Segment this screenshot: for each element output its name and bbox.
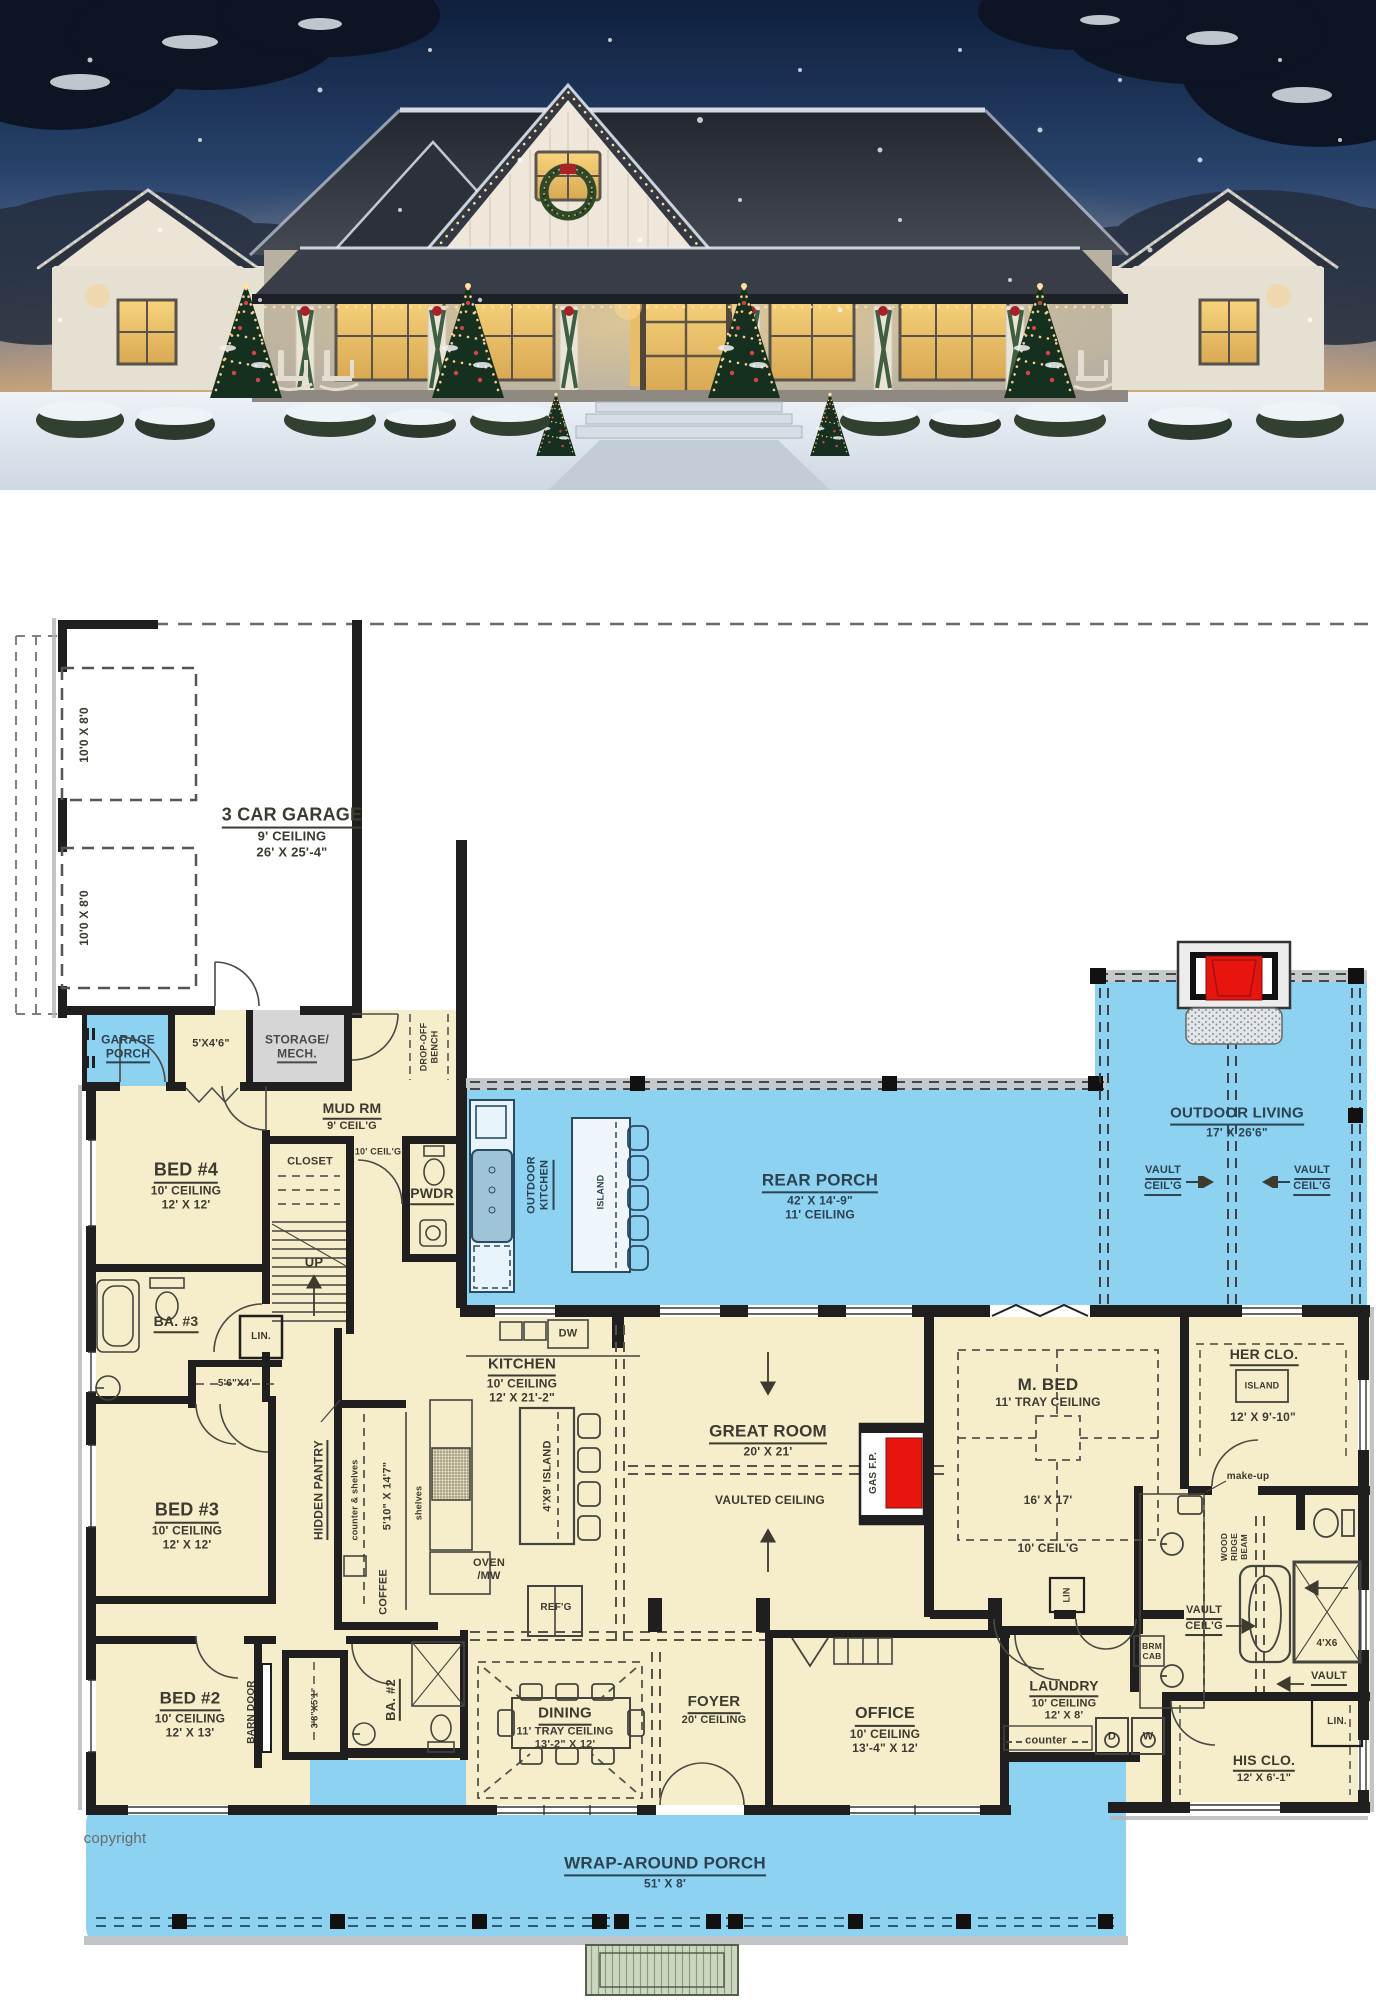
stairs-up-label: UP xyxy=(305,1254,323,1269)
rear-porch-label: REAR PORCH42' X 14'-9"11' CEILING xyxy=(762,1170,878,1221)
dishwasher-label: DW xyxy=(559,1328,578,1341)
ba2-closet-size-label: 3'8"X5'1" xyxy=(310,1688,321,1729)
powder-room-label: PWDR xyxy=(410,1185,454,1205)
her-closet-label: HER CLO. xyxy=(1230,1346,1299,1366)
her-closet-island-label: ISLAND xyxy=(1245,1381,1280,1392)
garage-label: 3 CAR GARAGE 9' CEILING 26' X 25'-4" xyxy=(222,805,362,860)
foyer-label: FOYER20' CEILING xyxy=(682,1693,747,1727)
closet-5x46-label: 5'X4'6" xyxy=(192,1038,230,1051)
vault-ceiling-label: VAULTCEIL'G xyxy=(1293,1164,1330,1196)
island-4x9-label: 4'X9' ISLAND xyxy=(542,1440,555,1511)
counter-shelves-label: counter & shelves xyxy=(350,1460,361,1541)
bath2-label: BA. #2 xyxy=(383,1679,401,1721)
shower-4x6-label: 4'X6 xyxy=(1317,1638,1338,1650)
garage-door-size-label: 10'0 X 8'0 xyxy=(77,707,91,763)
linen-label: LIN. xyxy=(251,1331,271,1343)
garage-door-size-label: 10'0 X 8'0 xyxy=(77,890,91,946)
vault-ceiling-label: VAULTCEIL'G xyxy=(1144,1164,1181,1196)
closet-56x4-label: 5'6"X4' xyxy=(218,1378,252,1390)
master-bed-ceiling: 10' CEIL'G xyxy=(1017,1541,1078,1555)
linen-hall-label: LIN xyxy=(1062,1587,1073,1602)
vaulted-ceiling-label: VAULTED CEILING xyxy=(715,1493,825,1507)
office-label: OFFICE10' CEILING13'-4" X 12' xyxy=(850,1705,920,1755)
garage-porch-label: GARAGEPORCH xyxy=(101,1032,155,1063)
storage-mech-label: STORAGE/MECH. xyxy=(265,1032,329,1063)
dining-label: DINING11' TRAY CEILING13'-2" X 12' xyxy=(517,1705,614,1752)
broom-cabinet-label: BRMCAB xyxy=(1142,1641,1162,1661)
room-title: 3 CAR GARAGE xyxy=(222,805,362,829)
outdoor-kitchen-label: OUTDOORKITCHEN xyxy=(526,1156,555,1214)
her-closet-size: 12' X 9'-10" xyxy=(1230,1410,1296,1424)
oven-mw-label: OVEN/MW xyxy=(473,1557,505,1583)
master-bed-label: M. BED11' TRAY CEILING xyxy=(995,1375,1100,1409)
vault-arrow-right xyxy=(1184,1176,1218,1188)
pantry-size-label: 5'10" X 14'7" xyxy=(382,1462,395,1530)
linen-label: LIN. xyxy=(1327,1716,1347,1728)
bed4-label: BED #410' CEILING12' X 12' xyxy=(151,1160,221,1213)
ceiling-10-label: 10' CEIL'G xyxy=(355,1147,401,1158)
washer-label: W xyxy=(1143,1731,1154,1744)
wrap-around-porch-label: WRAP-AROUND PORCH51' X 8' xyxy=(564,1853,766,1890)
bed3-label: BED #310' CEILING12' X 12' xyxy=(152,1500,222,1553)
hidden-pantry-label: HIDDEN PANTRY xyxy=(311,1440,328,1540)
makeup-label: make-up xyxy=(1227,1471,1270,1483)
closet-label: CLOSET xyxy=(287,1156,333,1169)
copyright-label: copyright xyxy=(84,1830,147,1848)
room-ceiling: 9' CEILING xyxy=(258,829,327,844)
bed2-label: BED #210' CEILING12' X 13' xyxy=(155,1688,225,1739)
barn-door-label: BARN DOOR xyxy=(246,1680,258,1743)
shelves-label: shelves xyxy=(414,1486,425,1520)
wood-ridge-beam-label: WOODRIDGEBEAM xyxy=(1219,1533,1249,1561)
floor-plan-drawing xyxy=(16,618,1372,1995)
vault-ceiling-label: VAULTCEIL'G xyxy=(1185,1604,1222,1636)
coffee-label: COFFEE xyxy=(378,1569,391,1615)
house-plan-page: 3 CAR GARAGE 9' CEILING 26' X 25'-4" 10'… xyxy=(0,0,1376,2000)
room-size: 26' X 25'-4" xyxy=(256,844,327,859)
vault-label: VAULT xyxy=(1311,1670,1347,1686)
his-closet-label: HIS CLO.12' X 6'-1" xyxy=(1233,1752,1295,1784)
outdoor-fireplace xyxy=(1178,942,1290,1044)
mud-room-label: MUD RM9' CEIL'G xyxy=(323,1100,382,1132)
outdoor-island-label: ISLAND xyxy=(596,1175,607,1210)
outdoor-living-label: OUTDOOR LIVING17' X 26'6" xyxy=(1170,1105,1304,1140)
kitchen-label: KITCHEN10' CEILING12' X 21'-2" xyxy=(487,1356,557,1405)
gas-fireplace-label: GAS F.P. xyxy=(868,1452,880,1494)
house-exterior-photo xyxy=(0,0,1376,490)
fridge-label: REF'G xyxy=(540,1602,571,1614)
vault-arrow-left xyxy=(1258,1176,1292,1188)
counter-label: counter xyxy=(1025,1735,1067,1748)
dryer-label: D xyxy=(1108,1731,1116,1744)
drop-off-bench-label: DROP-OFFBENCH xyxy=(418,1023,439,1072)
bath3-label: BA. #3 xyxy=(154,1313,199,1333)
great-room-label: GREAT ROOM20' X 21' xyxy=(709,1421,827,1458)
laundry-label: LAUNDRY10' CEILING12' X 8' xyxy=(1029,1677,1098,1722)
master-bed-size: 16' X 17' xyxy=(1024,1493,1073,1507)
